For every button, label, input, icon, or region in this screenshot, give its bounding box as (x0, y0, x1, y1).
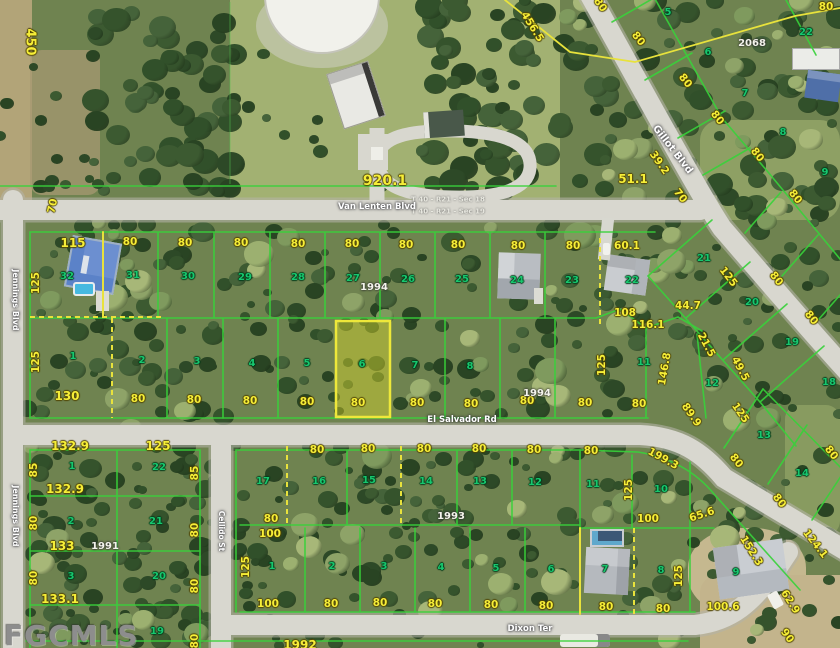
lot-number: 11 (637, 358, 651, 368)
dimension-label: 125 (624, 479, 635, 501)
lot-number: 6 (359, 360, 366, 370)
mls-watermark: FGCMLS (4, 619, 139, 648)
dimension-label: 116.1 (631, 320, 664, 331)
dimension-label: 80 (187, 395, 202, 406)
plat-number: 1993 (437, 512, 465, 522)
lot-number: 11 (586, 480, 600, 490)
lot-number: 13 (473, 477, 487, 487)
lot-number: 2 (68, 517, 75, 527)
dimension-label: 80 (29, 571, 40, 586)
dimension-label: 80 (324, 599, 339, 610)
dimension-label: 125 (241, 556, 252, 578)
street-label-jennings-blvd: Jennings Blvd (11, 269, 19, 330)
dimension-label: 80 (410, 398, 425, 409)
dimension-label: 80 (373, 598, 388, 609)
lot-number: 14 (419, 477, 433, 487)
dimension-label: 152.3 (738, 534, 765, 568)
lot-number: 27 (346, 274, 360, 284)
lot-number: 31 (126, 271, 140, 281)
lot-number: 22 (152, 463, 166, 473)
dimension-label: 80 (748, 146, 765, 164)
dimension-label: 115 (60, 237, 85, 249)
dimension-label: 80 (708, 109, 725, 127)
plat-number: 1991 (91, 542, 119, 552)
dimension-label: 80 (676, 72, 693, 90)
lot-number: 19 (785, 338, 799, 348)
street-label-jennings-blvd: Jennings Blvd (11, 485, 19, 546)
lot-number: 1 (70, 352, 77, 362)
dimension-label: 125 (31, 351, 42, 373)
lot-number: 13 (757, 431, 771, 441)
lot-number: 6 (548, 565, 555, 575)
dimension-label: 80 (629, 30, 646, 48)
lot-number: 3 (194, 357, 201, 367)
lot-number: 7 (742, 89, 749, 99)
lot-number: 17 (256, 477, 270, 487)
dimension-label: 80 (527, 445, 542, 456)
dimension-label: 90 (779, 627, 796, 645)
lot-number: 7 (602, 565, 609, 575)
lot-number: 8 (467, 362, 474, 372)
dimension-label: 80 (464, 399, 479, 410)
lot-number: 3 (68, 572, 75, 582)
lot-number: 22 (799, 28, 813, 38)
street-label-cellido-st: Cellido St (217, 511, 225, 551)
dimension-label: 108 (614, 308, 636, 319)
dimension-label: 80 (656, 604, 671, 615)
dimension-label: 80 (399, 240, 414, 251)
dimension-label: 70 (671, 187, 688, 205)
lot-number: 9 (822, 168, 829, 178)
dimension-label: 65.6 (688, 506, 716, 524)
dimension-label: 21.5 (695, 331, 716, 359)
dimension-label: 85 (29, 463, 40, 478)
lot-number: 3 (381, 562, 388, 572)
dimension-label: 125 (674, 565, 685, 587)
dimension-label: 100.6 (706, 602, 739, 613)
dimension-label: 1992 (283, 639, 316, 648)
dimension-label: 80 (786, 188, 803, 206)
dimension-label: 80 (511, 241, 526, 252)
dimension-label: 80 (767, 270, 784, 288)
lot-number: 12 (705, 379, 719, 389)
lot-number: 20 (745, 298, 759, 308)
dimension-label: 80 (472, 444, 487, 455)
lot-number: 26 (401, 275, 415, 285)
lot-number: 20 (152, 572, 166, 582)
lot-number: 19 (150, 627, 164, 637)
plat-number: 1994 (360, 283, 388, 293)
lot-number: 7 (412, 361, 419, 371)
dimension-label: 80 (592, 0, 609, 14)
dimension-label: 80 (234, 238, 249, 249)
lot-number: 9 (733, 568, 740, 578)
dimension-label: 39.2 (647, 149, 670, 176)
dimension-label: 80 (123, 237, 138, 248)
lot-number: 2 (139, 356, 146, 366)
lot-number: 2 (329, 562, 336, 572)
lot-number: 16 (312, 477, 326, 487)
dimension-label: 80 (190, 579, 201, 594)
dimension-label: 44.7 (675, 301, 701, 312)
dimension-label: 80 (822, 444, 839, 462)
dimension-label: 80 (770, 492, 787, 510)
street-label-dixon-ter: Dixon Ter (508, 625, 553, 634)
dimension-label: 80 (428, 599, 443, 610)
dimension-label: 80 (243, 396, 258, 407)
dimension-label: 199.3 (646, 446, 680, 471)
dimension-label: 100 (257, 599, 279, 610)
dimension-label: 80 (291, 239, 306, 250)
dimension-label: 133.1 (41, 593, 79, 605)
dimension-label: 80 (484, 600, 499, 611)
dimension-label: 49.5 (729, 355, 750, 383)
dimension-label: 62.9 (779, 588, 802, 616)
lot-number: 1 (269, 562, 276, 572)
dimension-label: 450 (24, 28, 37, 55)
dimension-label: 80 (178, 238, 193, 249)
dimension-label: 80 (727, 452, 744, 470)
dimension-label: 132.9 (46, 483, 84, 495)
dimension-label: 80 (361, 444, 376, 455)
dimension-label: 80 (632, 399, 647, 410)
dimension-label: 80 (29, 516, 40, 531)
lot-number: 5 (304, 359, 311, 369)
lot-number: 15 (362, 476, 376, 486)
lot-number: 4 (438, 563, 445, 573)
dimension-label: 456.5 (519, 10, 546, 44)
lot-number: 32 (60, 272, 74, 282)
section-label: T 40 - R21 - Sec 19 (411, 209, 485, 216)
dimension-label: 146.8 (657, 352, 673, 387)
dimension-label: 124.1 (801, 528, 830, 561)
dimension-label: 80 (190, 523, 201, 538)
lot-number: 1 (69, 462, 76, 472)
lot-number: 21 (697, 254, 711, 264)
dimension-label: 80 (802, 309, 819, 327)
dimension-label: 70 (46, 198, 59, 214)
dimension-label: 80 (584, 446, 599, 457)
lot-number: 14 (795, 469, 809, 479)
dimension-label: 80 (417, 444, 432, 455)
lot-number: 5 (665, 8, 672, 18)
lot-number: 8 (780, 128, 787, 138)
dimension-label: 80 (300, 397, 315, 408)
dimension-label: 60.1 (614, 241, 640, 252)
lot-number: 23 (565, 276, 579, 286)
lot-number: 4 (249, 359, 256, 369)
plat-number: 2068 (738, 39, 766, 49)
dimension-label: 125 (31, 272, 42, 294)
dimension-label: 80 (578, 398, 593, 409)
lot-number: 25 (455, 275, 469, 285)
dimension-label: 80 (539, 601, 554, 612)
lot-number: 12 (528, 478, 542, 488)
dimension-label: 80 (190, 634, 201, 648)
dimension-label: 89.9 (679, 401, 702, 428)
dimension-label: 80 (264, 514, 279, 525)
dimension-label: 920.1 (363, 174, 407, 188)
dimension-label: 85 (190, 466, 201, 481)
section-label: T 40 - R21 - Sec 18 (411, 197, 485, 204)
dimension-label: 125 (597, 354, 608, 376)
lot-number: 18 (822, 378, 836, 388)
dimension-label: 80 (351, 398, 366, 409)
dimension-label: 51.1 (618, 173, 648, 185)
dimension-label: 125 (145, 440, 170, 452)
dimension-label: 80 (451, 240, 466, 251)
street-label-van-lenten-blvd: Van Lenten Blvd (338, 203, 416, 212)
dimension-label: 80 (345, 239, 360, 250)
dimension-label: 125 (729, 401, 750, 425)
lot-number: 10 (654, 485, 668, 495)
lot-number: 30 (181, 272, 195, 282)
lot-number: 22 (625, 276, 639, 286)
lot-number: 8 (658, 566, 665, 576)
dimension-label: 132.9 (51, 440, 89, 452)
lot-number: 28 (291, 273, 305, 283)
plat-number: 1994 (523, 389, 551, 399)
dimension-label: 100 (259, 529, 281, 540)
dimension-label: 80 (819, 2, 834, 13)
labels-layer: 4508080456.5920.1808080808039.251.170701… (0, 0, 840, 648)
dimension-label: 125 (717, 265, 739, 289)
dimension-label: 80 (599, 602, 614, 613)
lot-number: 5 (493, 564, 500, 574)
dimension-label: 80 (566, 241, 581, 252)
street-label-el-salvador-rd: El Salvador Rd (427, 416, 496, 425)
dimension-label: 133 (49, 540, 74, 552)
parcel-map: 4508080456.5920.1808080808039.251.170701… (0, 0, 840, 648)
lot-number: 21 (149, 517, 163, 527)
dimension-label: 80 (310, 445, 325, 456)
dimension-label: 130 (54, 390, 79, 402)
lot-number: 24 (510, 276, 524, 286)
lot-number: 6 (705, 48, 712, 58)
lot-number: 29 (238, 273, 252, 283)
dimension-label: 100 (637, 514, 659, 525)
dimension-label: 80 (131, 394, 146, 405)
